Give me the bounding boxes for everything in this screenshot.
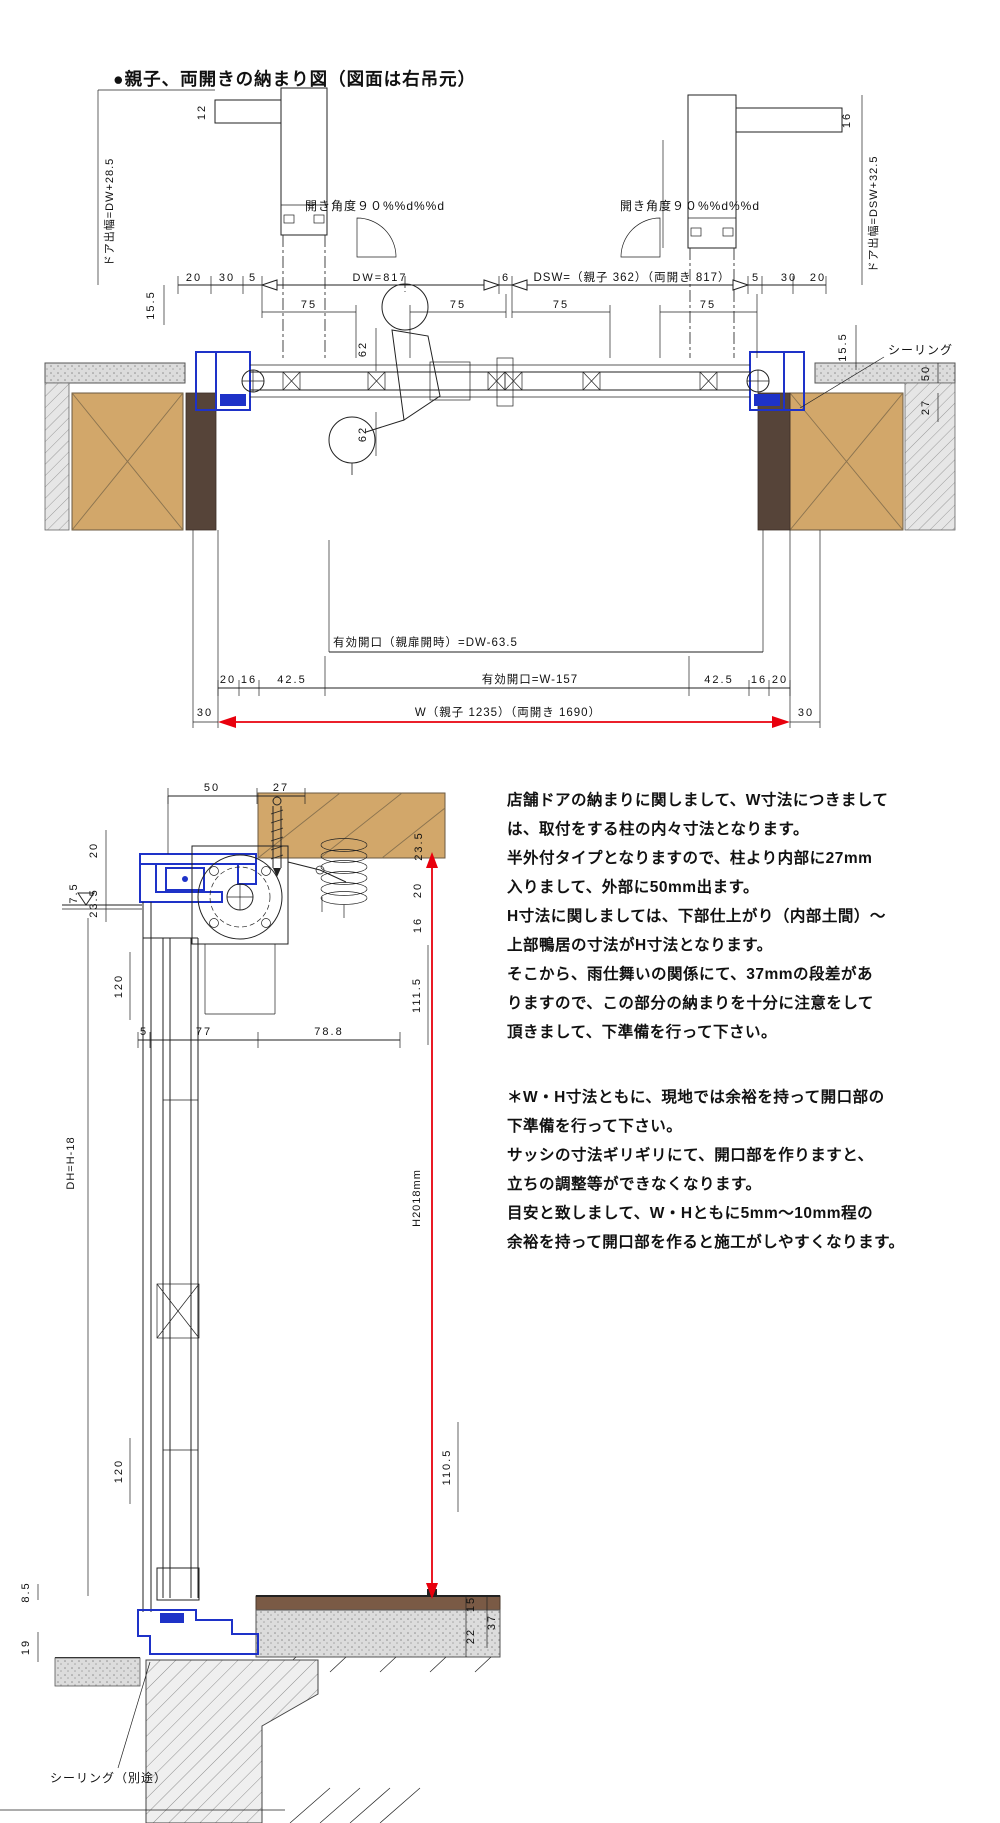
sec-dim-1105: 110.5 [441,1449,453,1486]
note-line: 立ちの調整等ができなくなります。 [507,1170,997,1199]
sec-dim-22: 22 [465,1628,477,1644]
dim-20-right: 20 [810,272,826,284]
dim-50-wall: 50 [920,365,932,381]
sec-dim-120-bottom: 120 [113,1459,125,1483]
sec-dim-85: 8.5 [20,1581,32,1602]
note-line: ＊W・H寸法ともに、現地では余裕を持って開口部の [507,1083,997,1112]
dim-5-left: 5 [249,272,257,284]
sec-dim-20-left: 20 [88,842,100,858]
note-line: は、取付をする柱の内々寸法となります。 [507,815,997,844]
dim-75-2: 75 [450,299,466,311]
notes-paragraph-1: 店舗ドアの納まりに関しまして、W寸法につきまして は、取付をする柱の内々寸法とな… [507,786,997,1047]
dim-30-right: 30 [781,272,797,284]
sec-dim-dh: DH=H-18 [65,1136,77,1189]
cap-dim-16: 16 [841,112,853,128]
door-offset-right: ドア出幅=DSW+32.5 [866,156,880,273]
sec-dim-788: 78.8 [314,1026,343,1038]
sec-dim-15: 15 [465,1596,477,1612]
dim-16b-right: 16 [751,674,767,686]
note-line: 目安と致しまして、W・Hともに5mm～10mm程の [507,1199,997,1228]
notes-block: 店舗ドアの納まりに関しまして、W寸法につきまして は、取付をする柱の内々寸法とな… [507,786,997,1257]
dim-27-wall: 27 [920,399,932,415]
sec-dim-50: 50 [204,782,220,794]
dim-425-left: 42.5 [277,674,306,686]
open-angle-right: 開き角度９０%%d%%d [620,198,760,213]
dim-75-1: 75 [301,299,317,311]
note-line: 余裕を持って開口部を作ると施工がしやすくなります。 [507,1228,997,1257]
dim-30-left: 30 [219,272,235,284]
sec-dim-120-top: 120 [113,974,125,998]
dim-425-right: 42.5 [704,674,733,686]
dim-75-3: 75 [553,299,569,311]
sealing-label: シーリング [888,343,953,357]
sealing-separate-label: シーリング（別途） [50,1770,167,1785]
dim-20-left: 20 [186,272,202,284]
opening-total-label: 有効開口=W-157 [482,672,578,686]
sec-dim-75: 7.5 [68,882,80,903]
door-offset-left: ドア出幅=DW+28.5 [102,158,116,267]
cap-dim-12: 12 [196,104,208,120]
dim-62-bottom: 62 [357,426,369,442]
note-line: 頂きまして、下準備を行って下さい。 [507,1018,997,1047]
dim-16b-left: 16 [241,674,257,686]
sec-dim-235-left: 23.5 [88,888,100,917]
note-line: 下準備を行って下さい。 [507,1112,997,1141]
sec-dim-19: 19 [20,1639,32,1655]
sec-dim-77: 77 [196,1026,212,1038]
sec-dim-235-right: 23.5 [413,831,425,860]
plan-open-doors [215,88,842,358]
dim-75-4: 75 [700,299,716,311]
open-angle-left: 開き角度９０%%d%%d [305,198,445,213]
note-line: 入りまして、外部に50mm出ます。 [507,873,997,902]
drawing-sheet: ●親子、両開きの納まり図（図面は右吊元） [0,0,1000,1823]
note-line: 半外付タイプとなりますので、柱より内部に27mm [507,844,997,873]
dim-5-right: 5 [752,272,760,284]
sec-dim-5: 5 [140,1026,148,1038]
dim-w-total: W（親子 1235）（両開き 1690） [415,706,601,719]
plan-walls [45,363,955,530]
sec-dim-h2018: H2018mm [411,1169,423,1227]
note-line: そこから、雨仕舞いの関係にて、37mmの段差があ [507,960,997,989]
sec-dim-1115: 111.5 [411,977,423,1013]
note-line: 上部鴨居の寸法がH寸法となります。 [507,931,997,960]
dim-6: 6 [502,272,510,284]
note-line: H寸法に関しましては、下部仕上がり（内部土間）～ [507,902,997,931]
sec-dim-16: 16 [412,917,424,933]
dim-30-wall-left: 30 [197,707,213,719]
note-line: 店舗ドアの納まりに関しまして、W寸法につきまして [507,786,997,815]
section-structure [0,793,500,1823]
note-line: サッシの寸法ギリギリにて、開口部を作りますと、 [507,1141,997,1170]
dim-20b-left: 20 [220,674,236,686]
dim-dsw: DSW=（親子 362）（両開き 817） [533,271,730,284]
sec-dim-37: 37 [486,1614,498,1630]
note-line: りますので、この部分の納まりを十分に注意をして [507,989,997,1018]
sec-dim-20-right: 20 [412,882,424,898]
opening-parent-label: 有効開口（親扉開時）=DW-63.5 [333,635,518,649]
dim-20b-right: 20 [772,674,788,686]
dim-15-5-right: 15.5 [837,332,849,361]
dim-30-wall-right: 30 [798,707,814,719]
dim-62-top: 62 [357,341,369,357]
notes-paragraph-2: ＊W・H寸法ともに、現地では余裕を持って開口部の 下準備を行って下さい。 サッシ… [507,1083,997,1257]
dim-15-5-left: 15.5 [145,290,157,319]
sec-dim-27: 27 [273,782,289,794]
dim-dw: DW=817 [352,272,407,284]
